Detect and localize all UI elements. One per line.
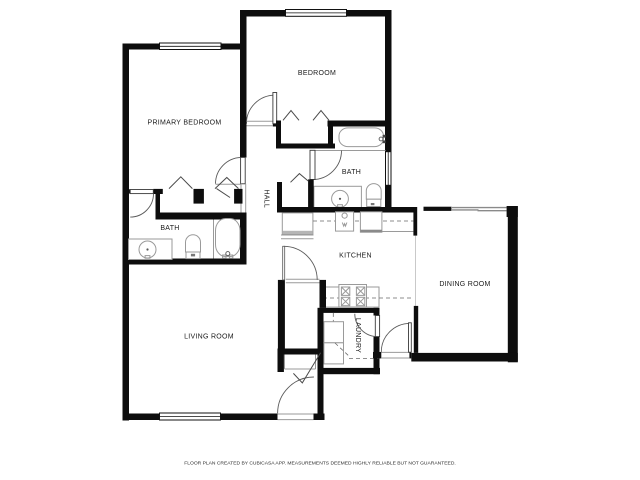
svg-text:BEDROOM: BEDROOM [298, 70, 336, 77]
svg-text:FLOOR PLAN CREATED BY CUBICASA: FLOOR PLAN CREATED BY CUBICASA APP. MEAS… [184, 460, 456, 466]
svg-text:LIVING ROOM: LIVING ROOM [184, 333, 234, 340]
svg-text:PRIMARY BEDROOM: PRIMARY BEDROOM [148, 120, 222, 127]
svg-text:KITCHEN: KITCHEN [339, 253, 372, 260]
svg-text:DINING ROOM: DINING ROOM [439, 281, 490, 288]
svg-text:BATH: BATH [160, 225, 179, 232]
svg-text:HALL: HALL [262, 189, 269, 208]
svg-text:LAUNDRY: LAUNDRY [354, 318, 361, 353]
svg-text:BATH: BATH [342, 169, 361, 176]
